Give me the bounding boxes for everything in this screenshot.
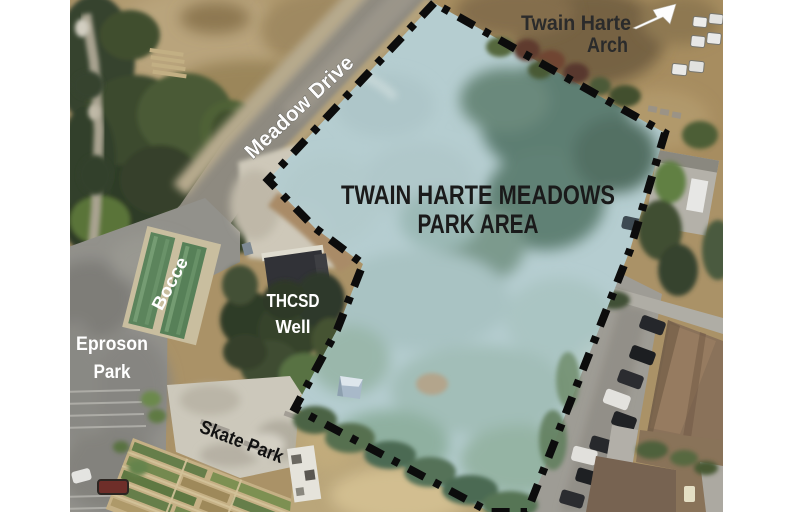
svg-text:PARK AREA: PARK AREA xyxy=(418,209,539,239)
svg-text:TWAIN HARTE MEADOWS: TWAIN HARTE MEADOWS xyxy=(341,180,615,210)
svg-text:Park: Park xyxy=(94,362,131,383)
svg-text:Eproson: Eproson xyxy=(76,334,148,355)
svg-text:THCSD: THCSD xyxy=(267,291,320,311)
svg-text:Twain Harte: Twain Harte xyxy=(521,12,631,35)
svg-text:Arch: Arch xyxy=(587,34,628,57)
svg-text:Well: Well xyxy=(276,317,311,337)
